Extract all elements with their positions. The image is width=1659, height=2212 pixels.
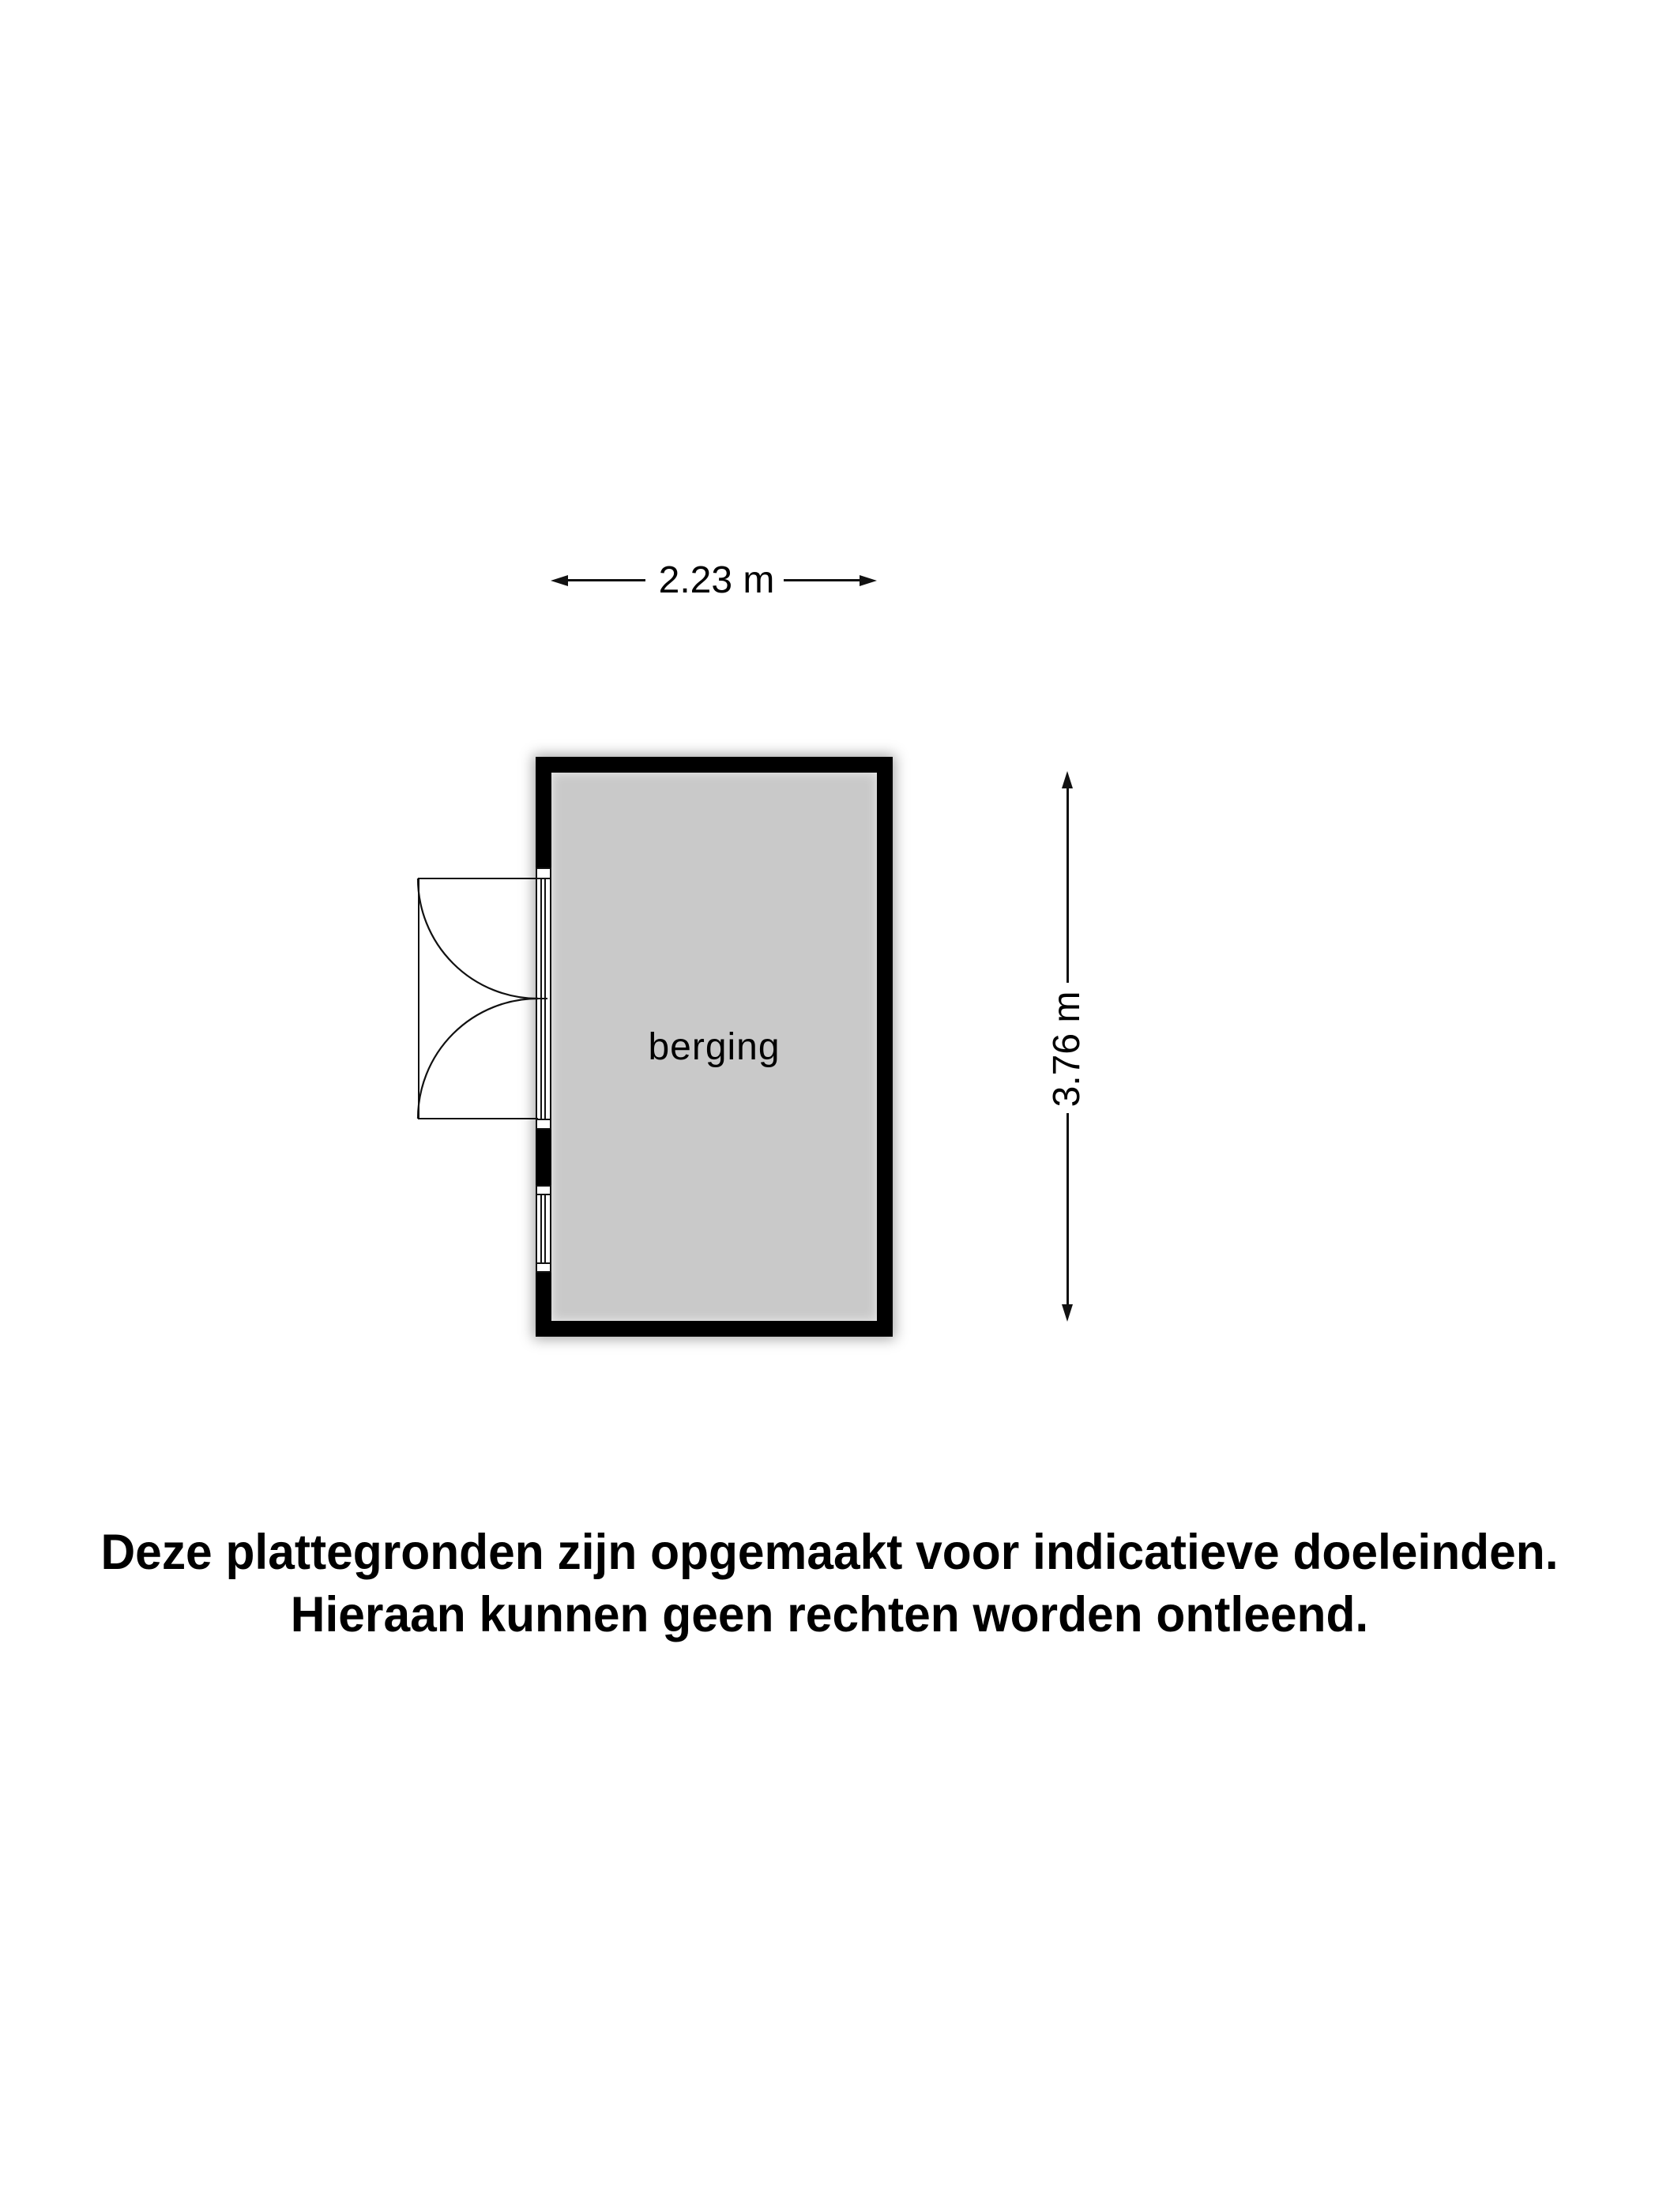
dimension-arrowhead-down-icon	[1062, 1304, 1073, 1322]
door-jamb-top	[536, 867, 551, 879]
door-jamb-bottom	[536, 1119, 551, 1130]
dimension-arrowhead-right-icon	[860, 575, 877, 586]
door-swing-arc-bottom	[418, 999, 538, 1119]
disclaimer-line-1: Deze plattegronden zijn opgemaakt voor i…	[33, 1522, 1626, 1584]
disclaimer-line-2: Hieraan kunnen geen rechten worden ontle…	[33, 1584, 1626, 1646]
floorplan-page: 2.23 m berging 3.76 m D	[0, 0, 1659, 2212]
door-leaf-bottom	[418, 1118, 538, 1119]
door-meeting-tick	[538, 998, 547, 999]
room-label: berging	[648, 1025, 780, 1069]
dimension-line	[784, 579, 860, 581]
window-glass-line	[544, 1195, 546, 1262]
window-glass-line	[540, 1195, 542, 1262]
dimension-line	[568, 579, 645, 581]
window-symbol	[536, 1195, 551, 1262]
door-swing-arc-top	[418, 878, 538, 999]
door-leaf-tip-line	[418, 878, 419, 1119]
width-dimension-label: 2.23 m	[638, 559, 796, 603]
dimension-arrowhead-up-icon	[1062, 771, 1073, 788]
dimension-arrowhead-left-icon	[551, 575, 568, 586]
room-floor: berging	[551, 773, 877, 1321]
dimension-line	[1066, 1113, 1069, 1305]
window-jamb-top	[536, 1185, 551, 1195]
disclaimer-text: Deze plattegronden zijn opgemaakt voor i…	[33, 1522, 1626, 1646]
door-leaf-top	[418, 878, 538, 879]
window-jamb-bottom	[536, 1262, 551, 1273]
